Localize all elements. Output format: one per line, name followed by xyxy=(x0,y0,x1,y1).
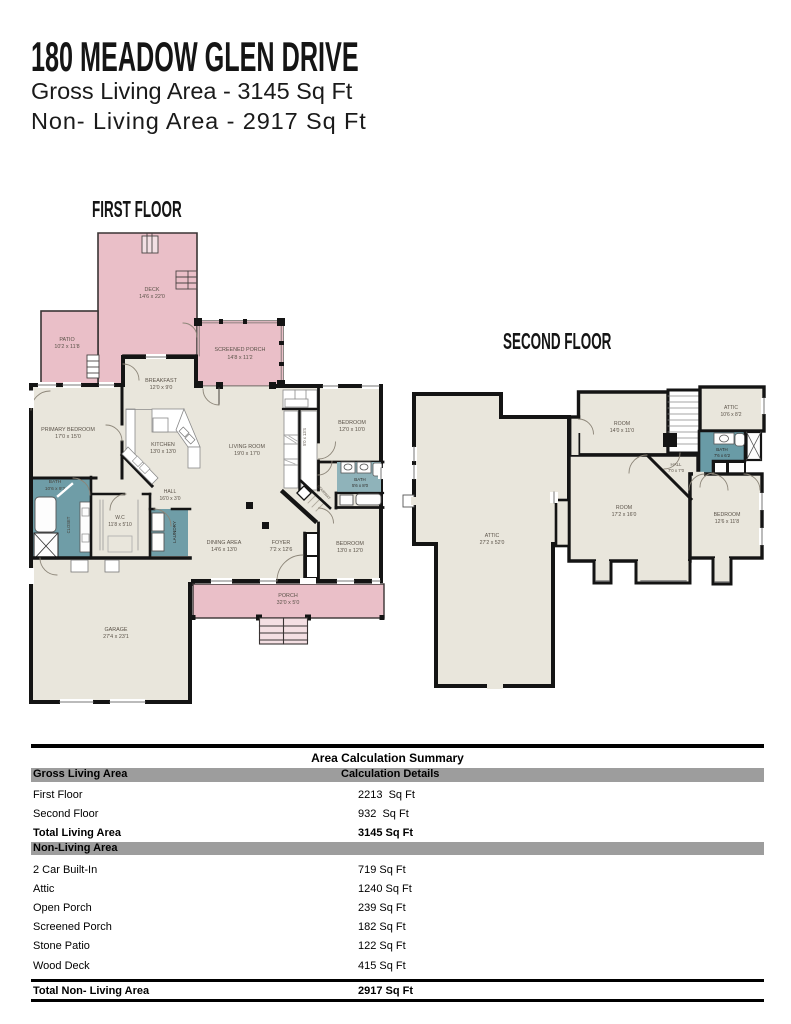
svg-text:DECK: DECK xyxy=(145,287,160,293)
svg-text:19'0 x 17'0: 19'0 x 17'0 xyxy=(234,451,260,457)
svg-text:17'0 x 15'0: 17'0 x 15'0 xyxy=(55,434,81,440)
svg-text:BEDROOM: BEDROOM xyxy=(338,420,366,426)
svg-text:14'8 x 11'2: 14'8 x 11'2 xyxy=(227,355,252,361)
svg-text:16'0 x 3'0: 16'0 x 3'0 xyxy=(159,496,180,502)
svg-text:ATTIC: ATTIC xyxy=(485,533,500,539)
svg-text:10'2 x 11'8: 10'2 x 11'8 xyxy=(54,344,79,350)
svg-text:LIVING ROOM: LIVING ROOM xyxy=(229,444,265,450)
svg-text:14'6 x 22'0: 14'6 x 22'0 xyxy=(139,294,165,300)
svg-text:BEDROOM: BEDROOM xyxy=(336,541,364,547)
svg-text:5'0 x 13'4: 5'0 x 13'4 xyxy=(302,428,307,446)
svg-text:SCREENED PORCH: SCREENED PORCH xyxy=(215,347,266,353)
svg-text:BATH: BATH xyxy=(716,447,727,452)
svg-text:11'8 x 5'10: 11'8 x 5'10 xyxy=(108,522,132,528)
svg-text:CLOSET: CLOSET xyxy=(66,516,71,533)
svg-text:BEDROOM: BEDROOM xyxy=(714,512,741,518)
svg-text:10'6 x 8'2: 10'6 x 8'2 xyxy=(720,412,741,418)
svg-text:12'6 x 11'8: 12'6 x 11'8 xyxy=(715,519,739,525)
svg-text:13'0 x 12'0: 13'0 x 12'0 xyxy=(337,548,363,554)
svg-text:17'2 x 16'0: 17'2 x 16'0 xyxy=(612,512,637,518)
svg-text:12'0 x 10'0: 12'0 x 10'0 xyxy=(339,427,365,433)
svg-text:DINING AREA: DINING AREA xyxy=(207,540,242,546)
svg-text:27'2 x 52'0: 27'2 x 52'0 xyxy=(480,540,505,546)
svg-text:LAUNDRY: LAUNDRY xyxy=(172,521,177,543)
svg-text:12'0 x 9'0: 12'0 x 9'0 xyxy=(150,385,173,391)
svg-text:27'4 x 23'1: 27'4 x 23'1 xyxy=(103,634,129,640)
svg-text:BATH: BATH xyxy=(49,479,62,485)
svg-text:13'0 x 13'0: 13'0 x 13'0 xyxy=(150,449,176,455)
svg-text:BREAKFAST: BREAKFAST xyxy=(145,378,177,384)
svg-text:ATTIC: ATTIC xyxy=(724,405,738,411)
svg-text:7'0 x 7'0: 7'0 x 7'0 xyxy=(668,468,685,473)
svg-text:KITCHEN: KITCHEN xyxy=(151,442,175,448)
svg-text:ROOM: ROOM xyxy=(614,421,630,427)
svg-text:ROOM: ROOM xyxy=(616,505,632,511)
svg-text:W.C: W.C xyxy=(115,515,125,521)
svg-text:5'6 x 8'0: 5'6 x 8'0 xyxy=(352,483,369,488)
svg-text:PORCH: PORCH xyxy=(278,593,298,599)
svg-text:PATIO: PATIO xyxy=(59,337,74,343)
svg-text:14'6 x 13'0: 14'6 x 13'0 xyxy=(211,547,237,553)
svg-text:GARAGE: GARAGE xyxy=(104,627,127,633)
svg-text:FOYER: FOYER xyxy=(272,540,291,546)
svg-text:7'6 x 6'2: 7'6 x 6'2 xyxy=(714,453,731,458)
svg-text:14'0 x 11'0: 14'0 x 11'0 xyxy=(610,428,634,434)
svg-text:HALL: HALL xyxy=(164,489,177,495)
svg-text:32'0 x 5'0: 32'0 x 5'0 xyxy=(277,600,300,606)
svg-text:PRIMARY BEDROOM: PRIMARY BEDROOM xyxy=(41,427,95,433)
svg-text:7'2 x 12'6: 7'2 x 12'6 xyxy=(270,547,293,553)
svg-text:BATH: BATH xyxy=(354,477,365,482)
